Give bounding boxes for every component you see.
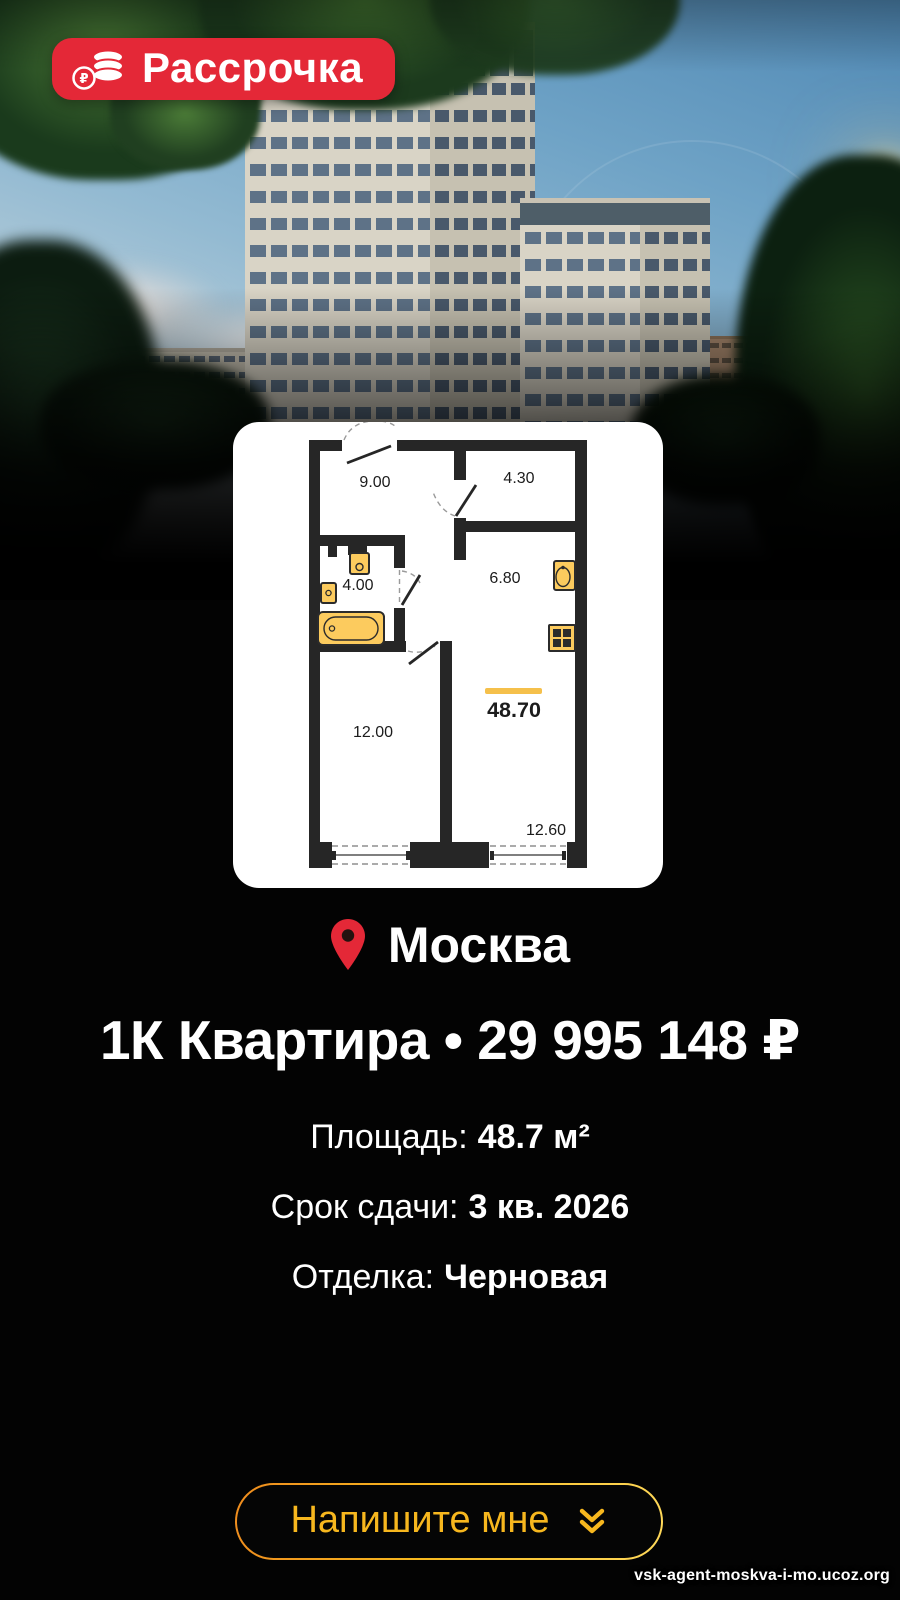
plan-walls bbox=[309, 440, 587, 868]
bathtub-icon bbox=[318, 612, 384, 645]
floor-plan-card: 9.00 4.30 4.00 6.80 12.00 48.70 12.60 bbox=[233, 422, 663, 888]
washbasin-icon bbox=[321, 583, 336, 603]
stove-icon bbox=[549, 625, 575, 651]
detail-area: Площадь:48.7 м² bbox=[0, 1115, 900, 1159]
watermark: vsk-agent-moskva-i-mo.ucoz.org bbox=[634, 1567, 890, 1585]
kitchen-sink-icon bbox=[554, 561, 575, 590]
svg-text:₽: ₽ bbox=[79, 72, 88, 87]
room-area-label: 6.80 bbox=[489, 570, 520, 587]
location: Москва bbox=[0, 912, 900, 978]
detail-value: Черновая bbox=[444, 1258, 608, 1296]
detail-value: 48.7 м² bbox=[478, 1118, 590, 1156]
floor-plan: 9.00 4.30 4.00 6.80 12.00 48.70 12.60 bbox=[299, 422, 597, 870]
ruble-coins-icon: ₽ bbox=[72, 45, 128, 93]
total-area-marker bbox=[485, 688, 542, 694]
room-area-label: 4.30 bbox=[503, 470, 534, 487]
total-area-label: 48.70 bbox=[487, 698, 541, 722]
ad-creative: ₽ Рассрочка bbox=[0, 0, 900, 1600]
detail-label: Отделка: bbox=[292, 1258, 434, 1296]
detail-finish: Отделка:Черновая bbox=[0, 1255, 900, 1299]
installment-badge-label: Рассрочка bbox=[142, 47, 363, 92]
detail-value: 3 кв. 2026 bbox=[469, 1188, 630, 1226]
contact-button[interactable]: Напишите мне bbox=[235, 1483, 663, 1560]
room-area-label: 9.00 bbox=[359, 474, 390, 491]
room-area-label: 12.60 bbox=[526, 822, 566, 839]
city-name: Москва bbox=[388, 920, 570, 970]
listing-title: 1К Квартира • 29 995 148 ₽ bbox=[0, 1008, 900, 1072]
room-area-label: 4.00 bbox=[342, 577, 373, 594]
bathroom-sink-icon bbox=[350, 553, 369, 574]
room-area-label: 12.00 bbox=[353, 724, 393, 741]
location-pin-icon bbox=[330, 918, 366, 972]
installment-badge: ₽ Рассрочка bbox=[52, 38, 395, 100]
detail-completion: Срок сдачи:3 кв. 2026 bbox=[0, 1185, 900, 1229]
contact-button-label: Напишите мне bbox=[290, 1501, 549, 1543]
detail-label: Площадь: bbox=[310, 1118, 467, 1156]
double-chevron-down-icon bbox=[576, 1507, 608, 1537]
detail-label: Срок сдачи: bbox=[271, 1188, 459, 1226]
